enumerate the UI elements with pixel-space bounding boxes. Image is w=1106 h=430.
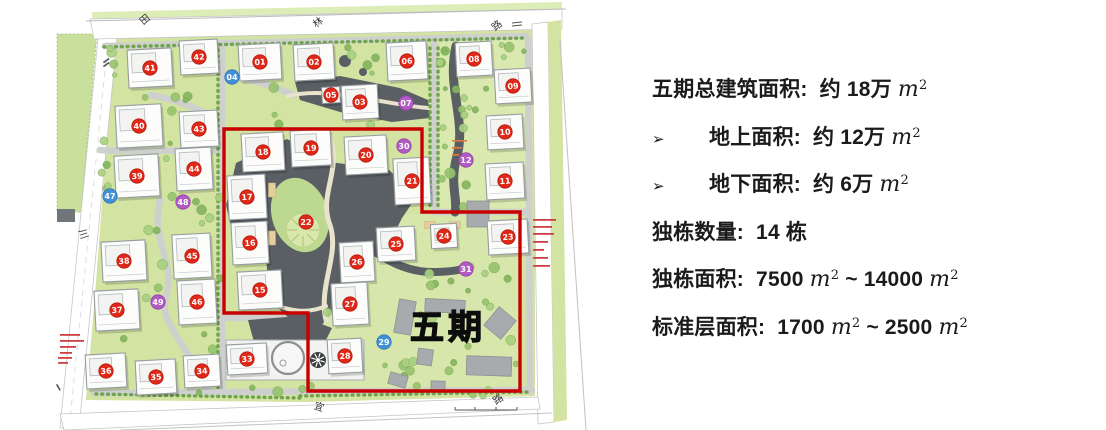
map-building-20: 20 <box>344 135 390 178</box>
tree <box>168 141 173 146</box>
building-number: 47 <box>104 192 115 201</box>
tree <box>208 345 217 354</box>
tree <box>153 227 160 234</box>
building-number: 07 <box>400 99 411 108</box>
tree <box>370 71 375 76</box>
map-marker-22: 22 <box>299 215 313 229</box>
building-number: 10 <box>499 127 511 137</box>
note-line <box>60 340 84 342</box>
unlabeled-building <box>466 356 512 377</box>
tree <box>196 390 202 396</box>
map-building-45: 45 <box>172 233 214 282</box>
note-line <box>533 226 552 228</box>
slide: 4142010205030608091011404339443845374636… <box>0 0 1106 430</box>
tree <box>112 73 117 78</box>
building-number: 39 <box>131 171 143 181</box>
map-building-24: 24 <box>430 223 459 251</box>
tree <box>482 299 489 306</box>
site-plan-map: 4142010205030608091011404339443845374636… <box>0 0 592 430</box>
tree <box>425 269 434 278</box>
building-number: 41 <box>144 63 156 73</box>
building-number: 15 <box>254 285 266 295</box>
tree <box>100 137 108 145</box>
tree <box>450 359 457 366</box>
tree <box>440 125 446 131</box>
map-building-10: 10 <box>486 114 526 153</box>
tree <box>157 259 167 269</box>
map-building-33: 33 <box>226 343 270 378</box>
map-building-05: 05 <box>322 86 343 106</box>
tree <box>192 198 199 205</box>
panel-line-text: 五期总建筑面积: 约 18万 m2 <box>652 73 927 103</box>
tree <box>197 205 207 215</box>
tree <box>489 262 500 273</box>
tree <box>436 59 444 67</box>
note-line <box>533 233 554 235</box>
building-number: 22 <box>300 218 311 227</box>
building-number: 46 <box>191 297 203 307</box>
panel-line-text: 标准层面积: 1700 m2 ~ 2500 m2 <box>652 311 968 341</box>
tree <box>467 105 472 110</box>
building-number: 49 <box>152 298 164 307</box>
panel-line: 独栋数量: 14 栋 <box>652 216 1098 264</box>
panel-line-text: 地下面积: 约 6万 m2 <box>709 168 909 198</box>
panel-line: 标准层面积: 1700 m2 ~ 2500 m2 <box>652 311 1098 359</box>
tree <box>205 214 214 223</box>
building-number: 38 <box>118 256 130 266</box>
tree <box>483 86 489 92</box>
tree <box>460 111 468 119</box>
map-building-41: 41 <box>127 48 175 91</box>
map-building-08: 08 <box>455 41 495 80</box>
tree <box>442 144 447 149</box>
unlabeled-building <box>416 348 433 366</box>
panel-line: 五期总建筑面积: 约 18万 m2 <box>652 73 1098 121</box>
map-marker-49: 49 <box>151 295 165 309</box>
map-building-06: 06 <box>386 41 430 84</box>
map-building-28: 28 <box>327 338 365 377</box>
panel-line-text: 地上面积: 约 12万 m2 <box>709 121 921 151</box>
note-line <box>452 154 459 156</box>
map-building-25: 25 <box>376 226 418 265</box>
tree <box>269 83 279 93</box>
map-building-16: 16 <box>231 221 271 268</box>
tree <box>513 361 519 367</box>
tree <box>461 95 468 102</box>
building-number: 23 <box>502 233 514 243</box>
square-meter-unit: m2 <box>831 316 861 339</box>
building-number: 43 <box>193 125 205 135</box>
tree <box>501 54 506 59</box>
building-number: 02 <box>308 58 320 68</box>
note-line <box>452 147 462 149</box>
tree <box>107 45 114 52</box>
tree <box>371 54 379 62</box>
round-pavilion <box>310 352 326 368</box>
building-number: 24 <box>438 231 450 241</box>
tree <box>504 42 514 52</box>
square-meter-unit: m2 <box>891 126 921 149</box>
building-number: 19 <box>305 143 317 153</box>
map-building-42: 42 <box>179 39 221 78</box>
note-line <box>452 140 467 142</box>
note-line <box>58 362 68 364</box>
building-number: 11 <box>499 176 511 186</box>
map-building-34: 34 <box>183 354 223 391</box>
square-meter-unit: m2 <box>929 268 959 291</box>
tree <box>441 46 450 55</box>
tree <box>459 124 468 133</box>
note-line <box>60 352 72 354</box>
tree <box>363 60 372 69</box>
building-number: 21 <box>406 176 418 186</box>
map-building-17: 17 <box>227 174 269 223</box>
building-number: 45 <box>186 251 198 261</box>
building-number: 05 <box>325 90 337 100</box>
tree <box>480 393 486 399</box>
building-number: 48 <box>177 198 189 207</box>
map-building-21: 21 <box>393 157 434 208</box>
list-bullet-icon: ➢ <box>652 130 709 148</box>
list-bullet-icon: ➢ <box>652 177 709 195</box>
tree <box>98 169 105 176</box>
tree <box>413 382 421 390</box>
building-number: 30 <box>398 142 410 151</box>
map-building-38: 38 <box>101 240 149 285</box>
map-building-23: 23 <box>487 219 531 258</box>
map-building-39: 39 <box>114 154 162 201</box>
tree <box>201 331 207 337</box>
building-number: 34 <box>196 366 208 376</box>
map-marker-30: 30 <box>397 139 411 153</box>
tree <box>183 98 188 103</box>
building-number: 33 <box>241 355 253 365</box>
building-number: 08 <box>468 54 480 64</box>
note-line <box>533 257 548 259</box>
map-building-35: 35 <box>135 359 179 398</box>
tree <box>299 385 306 392</box>
note-line <box>60 346 76 348</box>
building-number: 12 <box>460 156 471 165</box>
map-building-19: 19 <box>290 129 334 170</box>
panel-line: 独栋面积: 7500 m2 ~ 14000 m2 <box>652 263 1098 311</box>
note-line <box>58 357 72 359</box>
note-line <box>533 249 544 251</box>
building-number: 31 <box>460 265 472 274</box>
map-marker-47: 47 <box>103 189 117 203</box>
building-number: 01 <box>254 57 266 67</box>
tree <box>465 288 470 293</box>
tree <box>163 156 169 162</box>
building-number: 35 <box>150 372 162 382</box>
building-number: 20 <box>360 150 372 160</box>
square-meter-unit: m2 <box>879 173 909 196</box>
building-number: 17 <box>241 193 253 203</box>
panel-line: ➢地上面积: 约 12万 m2 <box>652 121 1098 169</box>
map-building-46: 46 <box>177 279 219 328</box>
tree <box>448 278 455 285</box>
building-number: 40 <box>133 121 145 131</box>
note-line <box>533 219 556 221</box>
map-marker-29: 29 <box>377 335 391 349</box>
tree <box>459 203 467 211</box>
tree <box>439 175 446 182</box>
map-building-15: 15 <box>237 270 285 313</box>
panel-line-text: 独栋面积: 7500 m2 ~ 14000 m2 <box>652 263 959 293</box>
tree <box>199 220 205 226</box>
tree <box>462 181 471 190</box>
tree <box>274 120 283 129</box>
round-pool <box>272 342 304 374</box>
site-furniture <box>269 183 276 197</box>
map-building-03: 03 <box>341 84 381 123</box>
map-building-09: 09 <box>494 68 534 107</box>
tree <box>443 86 448 91</box>
tree <box>120 335 127 342</box>
tree <box>445 168 456 179</box>
tree <box>171 93 180 102</box>
building-number: 03 <box>354 98 366 108</box>
square-meter-unit: m2 <box>898 78 928 101</box>
building-number: 36 <box>100 366 112 376</box>
phase5-label: 五期 <box>410 308 486 348</box>
tree <box>142 94 148 100</box>
building-number: 42 <box>193 53 205 63</box>
map-marker-31: 31 <box>459 262 473 276</box>
map-building-44: 44 <box>175 147 215 194</box>
building-number: 26 <box>351 257 363 267</box>
panel-line-text: 独栋数量: 14 栋 <box>652 216 807 246</box>
tree <box>109 60 118 69</box>
square-meter-unit: m2 <box>810 268 840 291</box>
map-building-37: 37 <box>94 289 142 334</box>
square-meter-unit: m2 <box>938 316 968 339</box>
tree <box>144 225 154 235</box>
map-marker-07: 07 <box>399 96 413 110</box>
tree <box>382 363 387 368</box>
tree <box>499 42 504 47</box>
tree <box>482 270 489 277</box>
tree <box>409 357 418 366</box>
bus-stop <box>57 209 75 222</box>
map-marker-04: 04 <box>225 70 239 84</box>
map-building-43: 43 <box>179 110 221 151</box>
tree <box>347 51 356 60</box>
map-building-02: 02 <box>293 43 337 84</box>
map-building-36: 36 <box>85 353 129 392</box>
tree <box>154 284 162 292</box>
building-number: 04 <box>226 73 238 82</box>
tree <box>472 107 479 114</box>
map-marker-48: 48 <box>176 195 190 209</box>
tree <box>406 366 415 375</box>
unlabeled-building <box>467 201 489 227</box>
tree <box>445 367 453 375</box>
note-line <box>533 265 550 267</box>
building-number: 25 <box>390 239 402 249</box>
note-line <box>533 241 548 243</box>
map-building-26: 26 <box>339 241 377 286</box>
building-number: 09 <box>507 81 519 91</box>
info-panel: 五期总建筑面积: 约 18万 m2➢地上面积: 约 12万 m2➢地下面积: 约… <box>652 73 1098 358</box>
map-building-40: 40 <box>115 104 165 151</box>
map-marker-12: 12 <box>459 153 473 167</box>
map-building-01: 01 <box>238 43 284 84</box>
building-number: 06 <box>401 56 413 66</box>
map-building-18: 18 <box>241 132 287 175</box>
tree <box>167 106 176 115</box>
building-number: 18 <box>257 147 269 157</box>
tree <box>272 112 278 118</box>
building-number: 44 <box>188 164 200 174</box>
tree <box>323 308 331 316</box>
tree <box>273 387 283 397</box>
tree <box>249 385 255 391</box>
tree <box>345 44 352 51</box>
note-line <box>60 334 80 336</box>
panel-line: ➢地下面积: 约 6万 m2 <box>652 168 1098 216</box>
tree <box>168 192 177 201</box>
map-building-27: 27 <box>331 282 371 329</box>
building-number: 28 <box>339 351 351 361</box>
glyph-mark <box>56 384 61 391</box>
building-number: 37 <box>111 306 123 316</box>
building-number: 27 <box>344 300 356 310</box>
building-number: 29 <box>378 338 390 347</box>
map-building-11: 11 <box>485 162 527 203</box>
tree <box>142 294 150 302</box>
tree <box>506 335 516 345</box>
building-number: 16 <box>244 238 256 248</box>
tree <box>426 281 435 290</box>
tree <box>103 161 111 169</box>
map-decoration <box>316 358 320 362</box>
tree <box>521 49 526 54</box>
tree <box>504 275 512 283</box>
tree <box>452 86 460 94</box>
